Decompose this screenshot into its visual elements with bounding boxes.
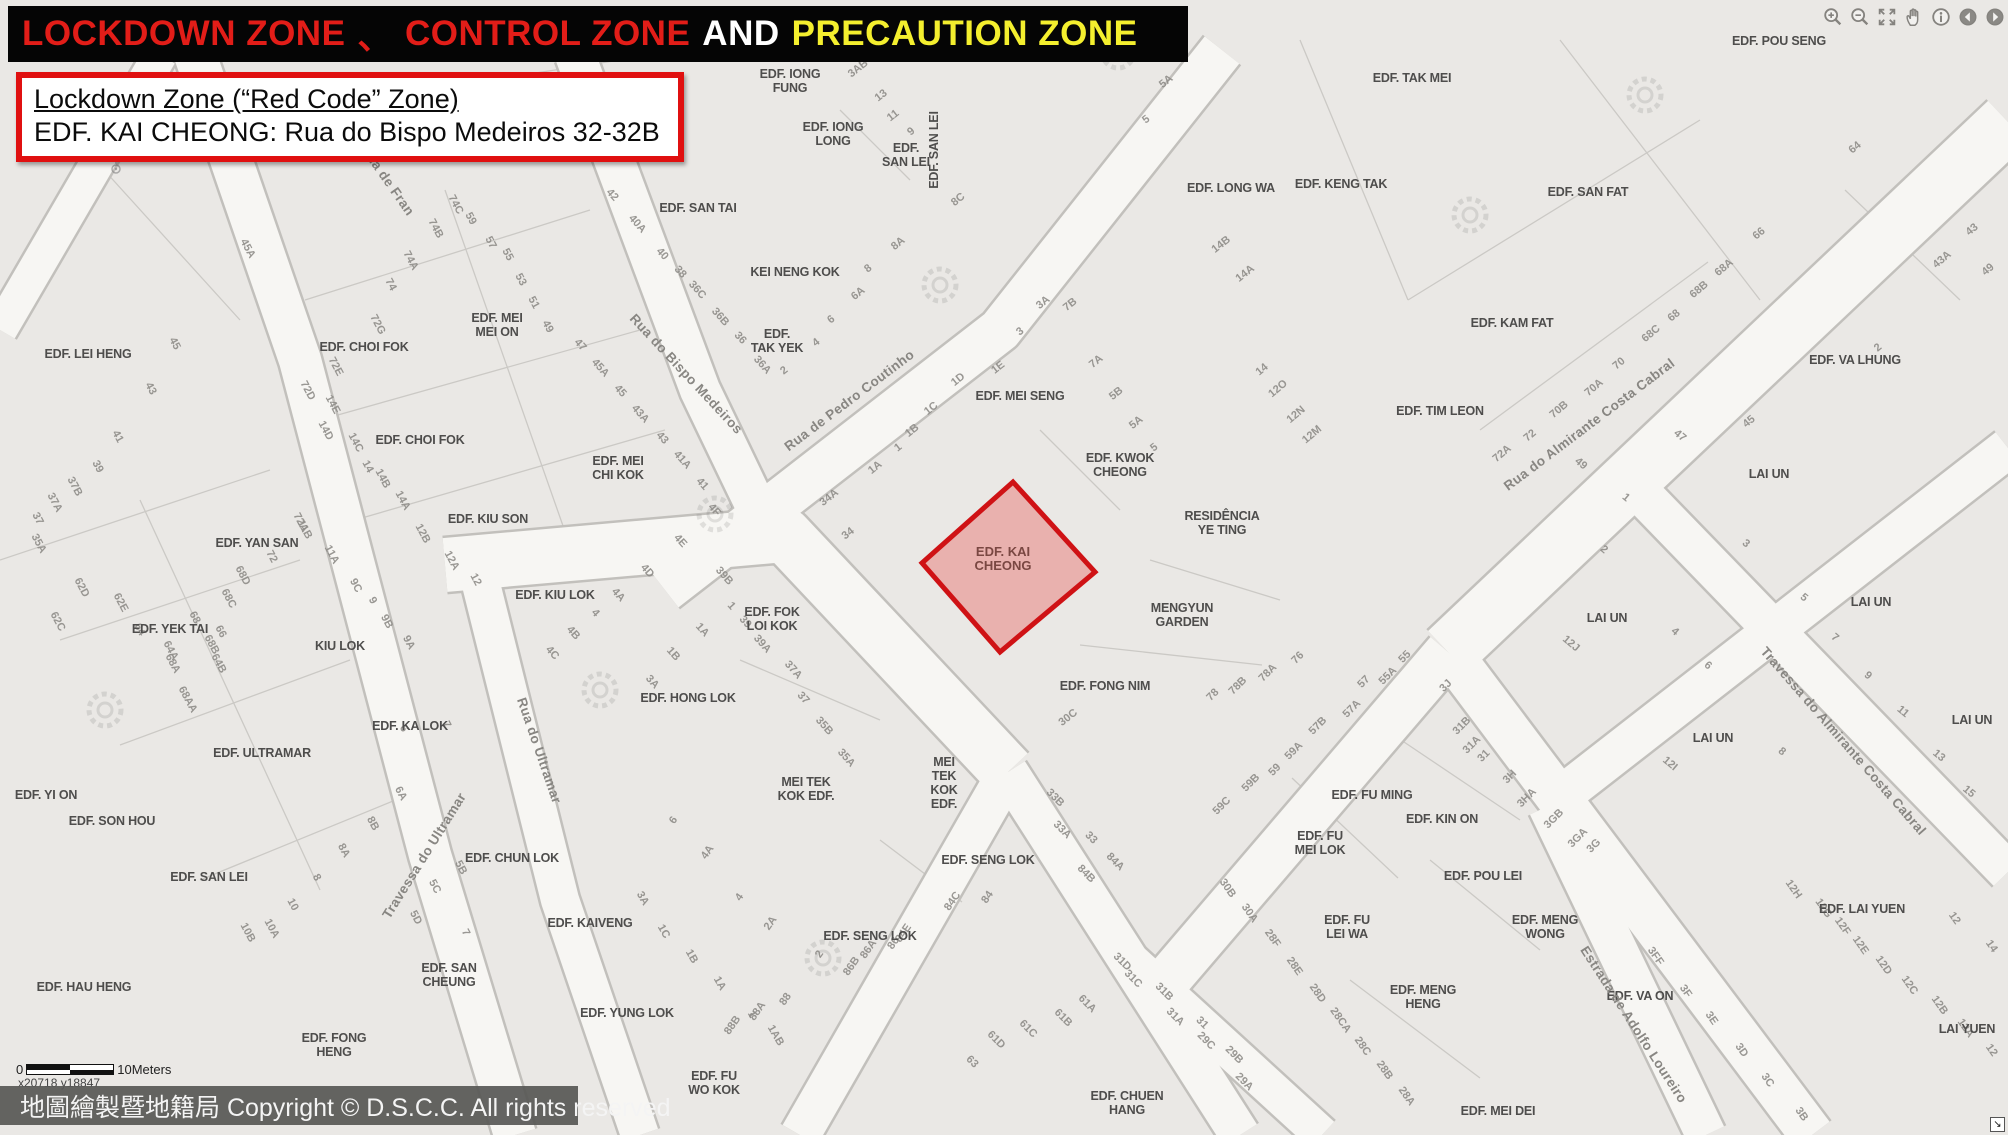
building-label: EDF. KIN ON: [1406, 812, 1478, 826]
scale-bar: 0 10Meters: [16, 1062, 171, 1077]
building-label: LAI UN: [1749, 467, 1790, 481]
building-label: EDF. SAN LEI: [927, 111, 941, 188]
map-toolbar: [1822, 6, 2006, 28]
building-label: EDF. YEK TAI: [132, 622, 208, 636]
building-label: EDF. POU LEI: [1444, 869, 1522, 883]
legend-zone-address: EDF. KAI CHEONG: Rua do Bispo Medeiros 3…: [34, 117, 666, 148]
building-label: EDF. MEI DEI: [1461, 1104, 1536, 1118]
building-label: EDF. YAN SAN: [215, 536, 298, 550]
building-label: LAI UN: [1851, 595, 1892, 609]
map-canvas[interactable]: 74C74B74A7472G72E72D14E14D14C1414B14A12B…: [0, 0, 2008, 1135]
building-label: EDF. POU SENG: [1732, 34, 1826, 48]
title-segment-lockdown: LOCKDOWN ZONE: [22, 14, 345, 54]
lockdown-zone-label: EDF. KAICHEONG: [974, 544, 1031, 573]
building-label: EDF. SAN TAI: [659, 201, 736, 215]
building-label: EDF. KAM FAT: [1471, 316, 1554, 330]
building-label: EDF. KAIVENG: [547, 916, 632, 930]
previous-extent-button[interactable]: [1957, 6, 1979, 28]
zoom-in-button[interactable]: [1822, 6, 1844, 28]
building-label: EDF. CHUN LOK: [465, 851, 559, 865]
building-label: EDF. CHOI FOK: [375, 433, 464, 447]
building-label: EDF. FONG NIM: [1060, 679, 1150, 693]
building-label: EDF. LONG WA: [1187, 181, 1275, 195]
building-label: EDF. SON HOU: [69, 814, 156, 828]
building-label: EDF. SANCHEUNG: [421, 961, 477, 989]
building-label: EDF. MEICHI KOK: [592, 454, 644, 482]
copyright-bar: 地圖繪製暨地籍局 Copyright © D.S.C.C. All rights…: [0, 1086, 578, 1125]
building-label: EDF. FUMEI LOK: [1295, 829, 1346, 857]
identify-button[interactable]: [1930, 6, 1952, 28]
building-label: EDF. VA LHUNG: [1809, 353, 1901, 367]
scale-label: 10Meters: [117, 1062, 171, 1077]
building-label: EDF. KIU LOK: [515, 588, 595, 602]
building-label: KIU LOK: [315, 639, 365, 653]
screenshot-root: 74C74B74A7472G72E72D14E14D14C1414B14A12B…: [0, 0, 2008, 1135]
building-label: LAI UN: [1693, 731, 1734, 745]
title-segment-and: AND: [702, 14, 779, 54]
building-label: EDF. CHOI FOK: [319, 340, 408, 354]
building-label: EDF. KIU SON: [448, 512, 528, 526]
building-label: EDF. SENG LOK: [941, 853, 1034, 867]
building-label: EDF. LAI YUEN: [1819, 902, 1905, 916]
page-title: LOCKDOWN ZONE 、 CONTROL ZONE AND PRECAUT…: [8, 6, 1188, 62]
building-label: EDF. KENG TAK: [1295, 177, 1387, 191]
full-extent-button[interactable]: [1876, 6, 1898, 28]
building-label: EDF. MEIMEI ON: [471, 311, 522, 339]
zoom-out-button[interactable]: [1849, 6, 1871, 28]
building-label: EDF. SAN FAT: [1548, 185, 1629, 199]
scale-bar-graphic: [26, 1064, 114, 1075]
building-label: EDF. FU MING: [1332, 788, 1413, 802]
building-label: EDF. FUWO KOK: [688, 1069, 740, 1097]
building-label: EDF. FOKLOI KOK: [744, 605, 800, 633]
pan-button[interactable]: [1903, 6, 1925, 28]
building-label: EDF. SENG LOK: [823, 929, 916, 943]
building-label: EDF. HAU HENG: [37, 980, 132, 994]
expand-corner-icon[interactable]: ↘: [1990, 1117, 2005, 1132]
legend-box: Lockdown Zone (“Red Code” Zone) EDF. KAI…: [16, 72, 684, 162]
building-label: EDF. ULTRAMAR: [213, 746, 311, 760]
building-label: EDF. MEI SENG: [975, 389, 1064, 403]
scale-zero: 0: [16, 1062, 23, 1077]
building-label: MEITEKKOKEDF.: [930, 755, 957, 811]
legend-zone-type: Lockdown Zone (“Red Code” Zone): [34, 84, 666, 115]
building-label: KEI NENG KOK: [750, 265, 839, 279]
title-segment-precaution: PRECAUTION ZONE: [792, 14, 1138, 54]
building-label: MENGYUNGARDEN: [1151, 601, 1214, 629]
building-label: EDF. SAN LEI: [170, 870, 247, 884]
next-extent-button[interactable]: [1984, 6, 2006, 28]
copyright-text: 地圖繪製暨地籍局 Copyright © D.S.C.C. All rights…: [20, 1088, 671, 1124]
building-label: EDF. YI ON: [15, 788, 78, 802]
title-separator: 、: [357, 9, 393, 60]
building-label: EDF. FULEI WA: [1324, 913, 1370, 941]
building-label: EDF. TIM LEON: [1396, 404, 1484, 418]
building-label: LAI UN: [1587, 611, 1628, 625]
building-label: MEI TEKKOK EDF.: [778, 775, 835, 803]
building-label: EDF. HONG LOK: [640, 691, 735, 705]
building-label: EDF. KWOKCHEONG: [1086, 451, 1155, 479]
building-label: EDF. KA LOK: [372, 719, 448, 733]
lockdown-zone-name: EDF. KAICHEONG: [974, 544, 1031, 573]
building-label: LAI YUEN: [1939, 1022, 1996, 1036]
title-segment-control: CONTROL ZONE: [405, 14, 690, 54]
building-label: EDF. YUNG LOK: [580, 1006, 674, 1020]
building-label: LAI UN: [1952, 713, 1993, 727]
building-label: EDF. LEI HENG: [45, 347, 132, 361]
building-label: EDF. TAK MEI: [1373, 71, 1452, 85]
